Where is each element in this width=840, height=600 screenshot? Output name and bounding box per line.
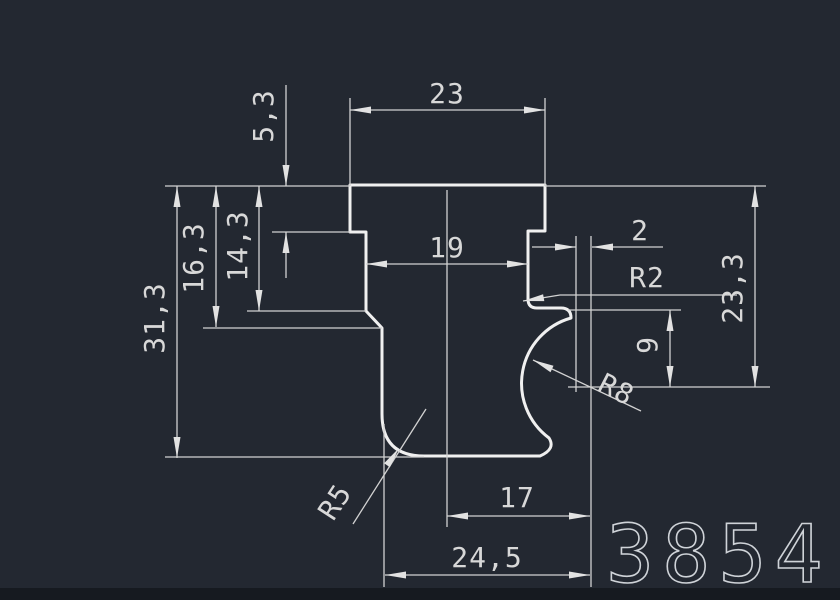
profile-outline <box>350 185 571 456</box>
dim-bottom-inner-width-label: 17 <box>499 481 535 514</box>
dim-left-step-height: 16,3 <box>177 186 220 327</box>
arrowhead-right <box>507 261 528 268</box>
arrowhead-right <box>569 513 590 520</box>
cad-canvas: 23 5,3 19 2 R2 14,3 1 <box>0 0 840 600</box>
dim-right-height-label: 23,3 <box>716 252 749 323</box>
arrowhead-up <box>213 186 220 207</box>
arrowhead-down <box>752 366 759 387</box>
arrowhead-up <box>174 186 181 207</box>
dim-top-width: 23 <box>350 77 545 114</box>
arrowhead-up <box>256 186 263 207</box>
arrowhead-down <box>667 366 674 387</box>
dim-notch-offset: 2 <box>532 214 663 251</box>
dim-groove-height: 9 <box>631 310 674 387</box>
arrowhead-left <box>447 513 468 520</box>
dim-inner-width-label: 19 <box>429 231 465 264</box>
part-number: 3854 <box>606 508 831 600</box>
dim-total-height: 31,3 <box>138 186 181 458</box>
arrowhead-left <box>366 261 387 268</box>
dim-groove-height-label: 9 <box>631 336 664 354</box>
leader-notch-radius: R2 <box>523 261 737 301</box>
arrowhead-right <box>524 107 545 114</box>
arrowhead-upleft <box>533 360 554 372</box>
dim-bottom-width: 24,5 <box>385 541 590 579</box>
leader-line <box>523 295 737 301</box>
dim-notch-offset-label: 2 <box>631 214 649 247</box>
arrowhead-left <box>385 572 406 579</box>
arrowhead-left <box>592 244 613 251</box>
arrowhead-down <box>256 290 263 311</box>
dim-groove-radius-label: R8 <box>593 367 640 413</box>
dim-total-height-label: 31,3 <box>138 282 171 353</box>
dim-flange-height-label: 5,3 <box>247 89 280 143</box>
dim-left-step-depth: 14,3 <box>221 186 263 311</box>
dim-right-height: 23,3 <box>716 186 759 387</box>
dim-left-step-depth-label: 14,3 <box>221 210 254 281</box>
arrowhead-right <box>555 244 576 251</box>
arrowhead-left <box>350 107 371 114</box>
dim-inner-width: 19 <box>366 231 528 268</box>
dim-foot-radius-label: R5 <box>311 478 358 526</box>
dim-bottom-width-label: 24,5 <box>451 541 522 574</box>
arrowhead-up <box>283 232 290 253</box>
arrowhead-up <box>667 310 674 331</box>
canvas-bottom-edge <box>0 588 840 600</box>
arrowhead-down <box>283 165 290 186</box>
profile-drawing: 23 5,3 19 2 R2 14,3 1 <box>0 0 840 600</box>
dim-bottom-inner-width: 17 <box>447 481 590 520</box>
dim-top-width-label: 23 <box>429 77 465 110</box>
arrowhead-down <box>213 306 220 327</box>
dim-left-step-height-label: 16,3 <box>177 222 210 293</box>
arrowhead-down <box>174 437 181 458</box>
arrowhead-left <box>523 294 544 301</box>
leader-groove-radius: R8 <box>533 360 641 412</box>
leader-foot-radius: R5 <box>311 409 426 526</box>
dim-notch-radius-label: R2 <box>629 261 665 294</box>
arrowhead-right <box>569 572 590 579</box>
arrowhead-up <box>752 186 759 207</box>
